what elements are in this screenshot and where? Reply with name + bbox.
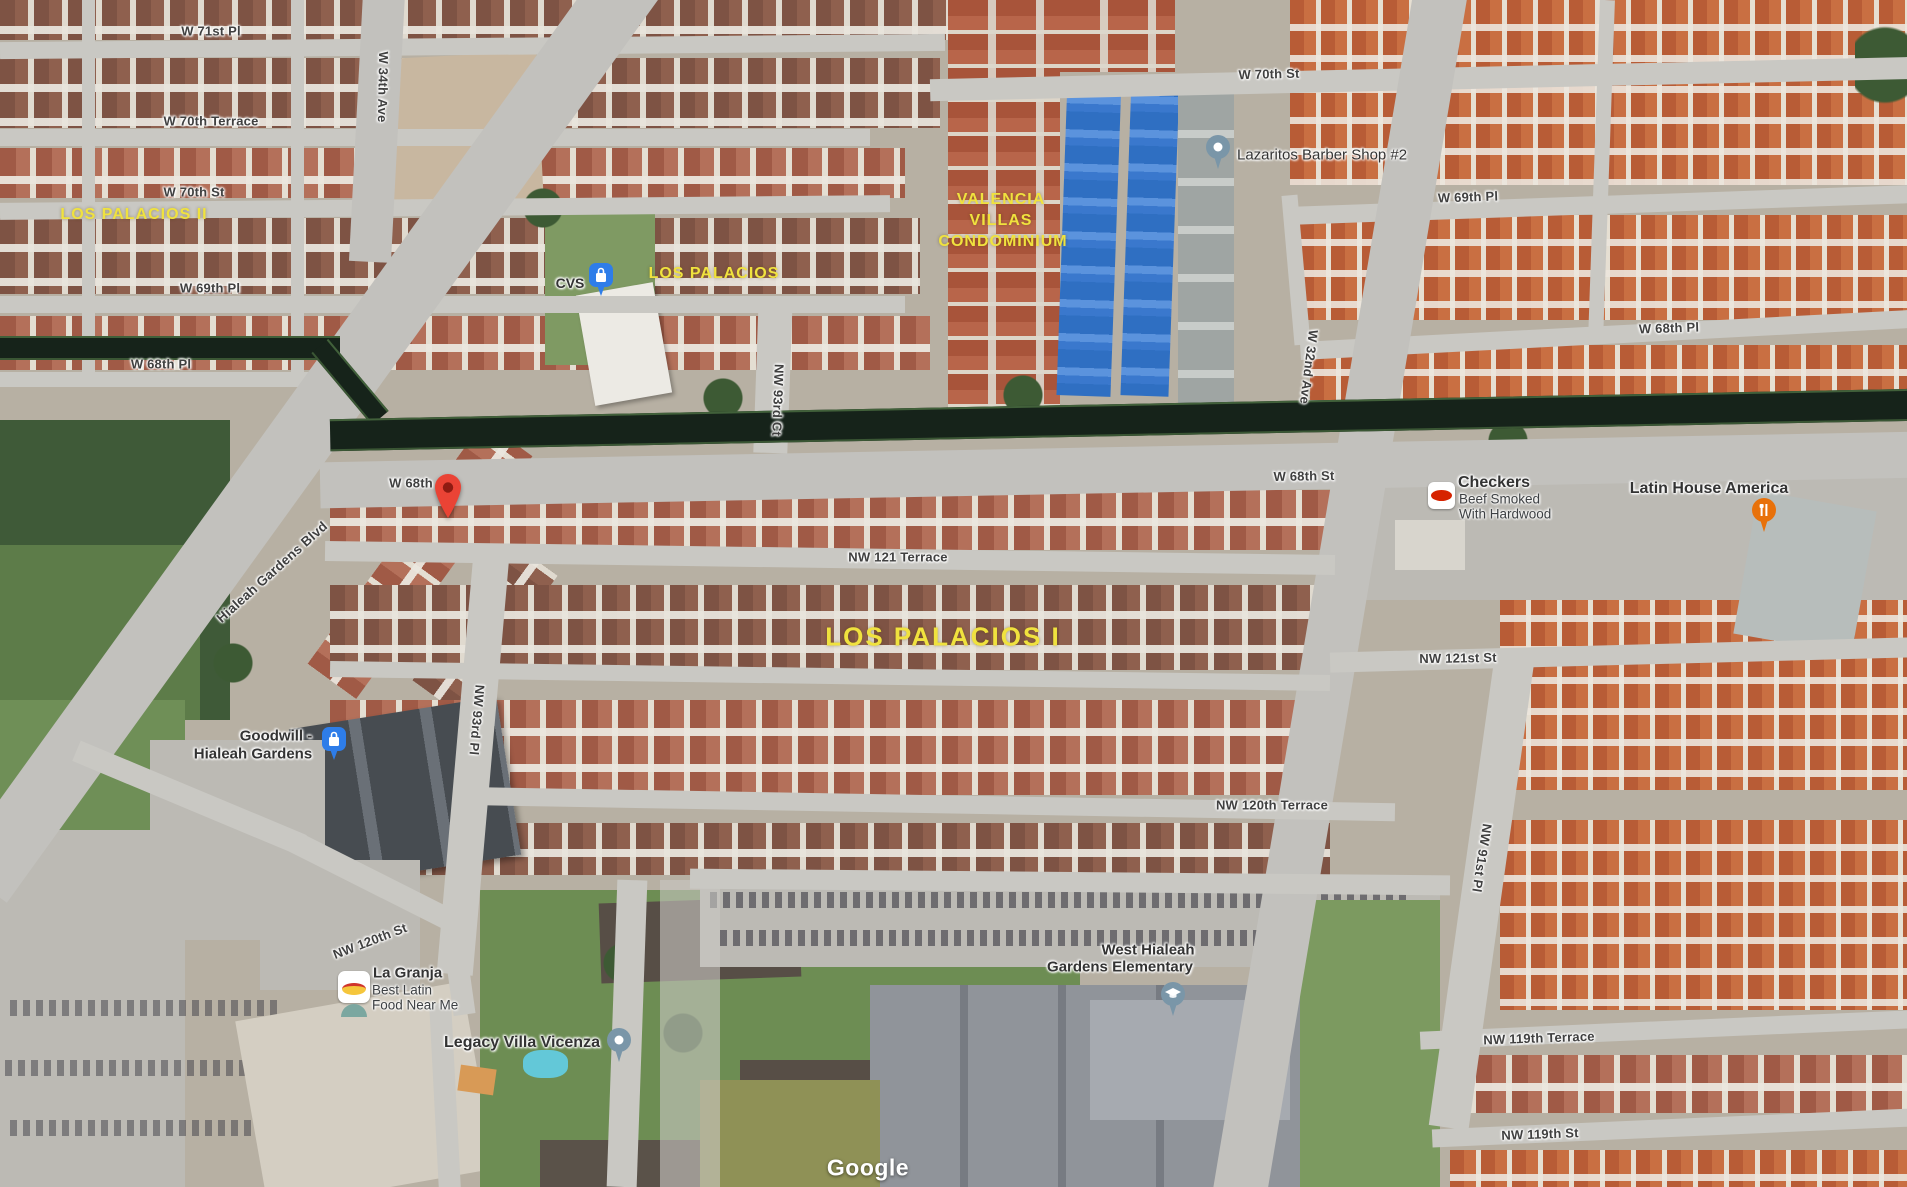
poi-label-legacy-villa-vicenza[interactable]: Legacy Villa Vicenza	[444, 1034, 600, 1052]
legacy-pin-icon[interactable]	[606, 1027, 632, 1063]
terrain-blue-tarp-roofs	[1120, 77, 1179, 396]
poi-label-cvs[interactable]: CVS	[556, 275, 585, 291]
street-label-w-68th-st-at-marker: W 68th	[389, 476, 433, 491]
school-pin-icon[interactable]	[1160, 981, 1186, 1017]
street-label-w-68th-st: W 68th St	[1273, 468, 1334, 484]
checkers-logo-icon[interactable]	[1428, 482, 1455, 509]
terrain-houses	[1440, 1055, 1907, 1113]
road-driveway	[660, 880, 720, 1187]
la-granja-logo-mark	[342, 983, 366, 995]
tree	[210, 640, 256, 686]
la-granja-logo-icon[interactable]	[338, 971, 370, 1003]
terrain-houses	[1450, 1150, 1907, 1187]
poi-label-school-line1[interactable]: West Hialeah	[1101, 942, 1194, 959]
street-label-w-68th-pl-east: W 68th Pl	[1639, 319, 1700, 336]
poi-label-checkers-line3: With Hardwood	[1459, 507, 1551, 522]
terrain-houses	[1500, 820, 1907, 1010]
road	[291, 0, 304, 378]
terrain-grass	[1300, 900, 1440, 1187]
area-label-villas: VILLAS	[970, 212, 1033, 230]
terrain-parked-cars	[10, 1000, 280, 1016]
cvs-pin-icon[interactable]	[588, 262, 614, 297]
street-label-nw-121st-st: NW 121st St	[1419, 650, 1497, 666]
poi-label-la-granja-line2: Best Latin	[372, 983, 432, 998]
terrain-checkers-building	[1395, 520, 1465, 570]
street-label-nw-119th-terrace: NW 119th Terrace	[1483, 1029, 1595, 1048]
area-label-condominium: CONDOMINIUM	[938, 233, 1067, 251]
street-label-nw-93rd-ct: NW 93rd Ct	[769, 364, 787, 437]
street-label-w-68th-pl-west: W 68th Pl	[131, 357, 191, 372]
area-label-los-palacios: LOS PALACIOS	[649, 265, 780, 283]
terrain-parked-cars	[10, 1120, 280, 1136]
poi-label-checkers[interactable]: Checkers	[1458, 474, 1530, 492]
street-label-nw-121-terrace: NW 121 Terrace	[848, 550, 947, 565]
street-label-w-69th-pl-east: W 69th Pl	[1438, 188, 1499, 205]
google-watermark: Google	[827, 1155, 909, 1182]
goodwill-pin-icon[interactable]	[321, 726, 347, 761]
road-w-70th-terrace	[0, 129, 870, 146]
street-label-w-70th-terrace: W 70th Terrace	[163, 114, 258, 129]
area-label-valencia: VALENCIA	[957, 191, 1046, 209]
poi-label-latin-house-america[interactable]: Latin House America	[1630, 480, 1789, 498]
road-w-68th-pl	[0, 372, 335, 387]
street-label-w-71st-pl: W 71st Pl	[181, 24, 241, 39]
poi-label-la-granja-line3: Food Near Me	[372, 998, 458, 1013]
poi-label-goodwill-line1[interactable]: Goodwill -	[240, 728, 313, 745]
poi-label-la-granja[interactable]: La Granja	[373, 965, 442, 982]
poi-label-school-line2[interactable]: Gardens Elementary	[1047, 959, 1193, 976]
poi-label-goodwill-line2[interactable]: Hialeah Gardens	[194, 746, 312, 763]
street-label-w-34th-ave: W 34th Ave	[375, 51, 391, 122]
terrain-houses	[1060, 0, 1175, 72]
terrain-houses	[0, 0, 950, 40]
poi-label-lazaritos[interactable]: Lazaritos Barber Shop #2	[1237, 147, 1407, 164]
latin-house-restaurant-pin-icon[interactable]	[1751, 497, 1777, 533]
street-label-nw-120th-terrace: NW 120th Terrace	[1216, 798, 1328, 813]
red-map-marker[interactable]	[433, 473, 463, 519]
terrain-pool	[523, 1050, 568, 1078]
checkers-logo-oval	[1431, 490, 1452, 501]
area-label-los-palacios-i: LOS PALACIOS I	[825, 622, 1061, 653]
area-label-los-palacios-ii: LOS PALACIOS II	[60, 206, 207, 224]
street-label-w-70th-st-west: W 70th St	[163, 185, 224, 200]
terrain-canopy	[457, 1065, 496, 1096]
satellite-map[interactable]: W 71st Pl W 70th Terrace W 70th St W 69t…	[0, 0, 1907, 1187]
poi-label-checkers-line2: Beef Smoked	[1459, 492, 1540, 507]
street-label-w-69th-pl-west: W 69th Pl	[180, 281, 240, 296]
street-label-nw-119th-st: NW 119th St	[1501, 1125, 1579, 1143]
street-label-w-70th-st-east: W 70th St	[1238, 66, 1299, 83]
lazaritos-pin-icon[interactable]	[1205, 134, 1231, 170]
